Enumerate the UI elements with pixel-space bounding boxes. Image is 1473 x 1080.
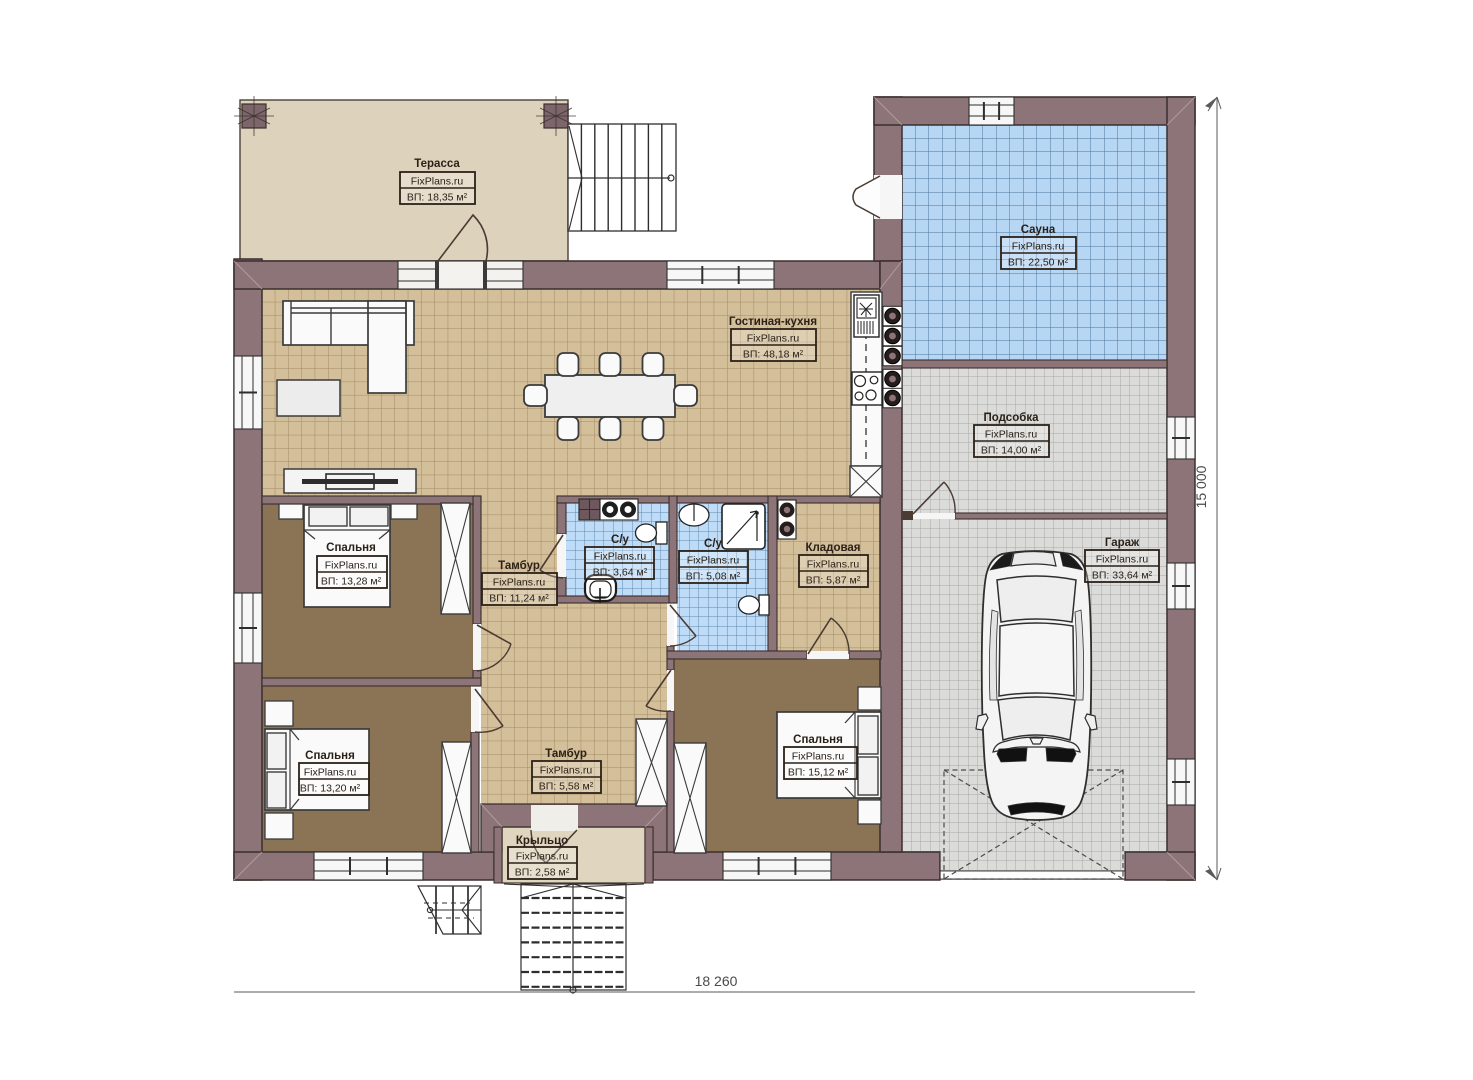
svg-text:Спальня: Спальня bbox=[305, 750, 355, 762]
svg-text:ВП: 15,12 м²: ВП: 15,12 м² bbox=[788, 767, 849, 779]
svg-text:Сауна: Сауна bbox=[1021, 224, 1056, 236]
svg-text:FixPlans.ru: FixPlans.ru bbox=[516, 851, 569, 863]
svg-text:FixPlans.ru: FixPlans.ru bbox=[687, 555, 740, 567]
svg-text:Тамбур: Тамбур bbox=[545, 748, 587, 760]
svg-text:FixPlans.ru: FixPlans.ru bbox=[304, 767, 357, 779]
svg-text:С/у: С/у bbox=[611, 534, 630, 546]
svg-text:15 000: 15 000 bbox=[1193, 465, 1209, 508]
svg-text:FixPlans.ru: FixPlans.ru bbox=[411, 176, 464, 188]
svg-text:ВП: 13,28 м²: ВП: 13,28 м² bbox=[321, 576, 382, 588]
svg-text:ВП: 11,24 м²: ВП: 11,24 м² bbox=[489, 593, 549, 605]
svg-text:ВП: 5,58 м²: ВП: 5,58 м² bbox=[539, 781, 594, 793]
svg-text:FixPlans.ru: FixPlans.ru bbox=[325, 560, 378, 572]
svg-text:Крыльцо: Крыльцо bbox=[516, 835, 568, 847]
svg-text:ВП: 5,08 м²: ВП: 5,08 м² bbox=[686, 571, 741, 583]
svg-text:Кладовая: Кладовая bbox=[805, 542, 860, 554]
svg-text:ВП: 2,58 м²: ВП: 2,58 м² bbox=[515, 867, 570, 879]
svg-text:FixPlans.ru: FixPlans.ru bbox=[807, 559, 860, 571]
svg-text:Спальня: Спальня bbox=[793, 734, 843, 746]
svg-text:FixPlans.ru: FixPlans.ru bbox=[747, 333, 800, 345]
svg-text:18 260: 18 260 bbox=[695, 973, 738, 989]
svg-text:ВП: 3,64 м²: ВП: 3,64 м² bbox=[593, 567, 648, 579]
svg-text:Терасса: Терасса bbox=[414, 158, 460, 170]
svg-text:ВП: 5,87 м²: ВП: 5,87 м² bbox=[806, 575, 861, 587]
svg-text:С/у: С/у bbox=[704, 538, 723, 550]
svg-text:Гараж: Гараж bbox=[1105, 537, 1140, 549]
svg-text:FixPlans.ru: FixPlans.ru bbox=[594, 551, 647, 563]
svg-text:ВП: 18,35 м²: ВП: 18,35 м² bbox=[407, 192, 468, 204]
svg-text:ВП: 48,18 м²: ВП: 48,18 м² bbox=[743, 349, 804, 361]
svg-text:FixPlans.ru: FixPlans.ru bbox=[792, 751, 845, 763]
svg-text:FixPlans.ru: FixPlans.ru bbox=[493, 577, 546, 589]
svg-text:ВП: 22,50 м²: ВП: 22,50 м² bbox=[1008, 257, 1069, 269]
svg-text:Спальня: Спальня bbox=[326, 542, 376, 554]
svg-text:ВП: 33,64 м²: ВП: 33,64 м² bbox=[1092, 570, 1153, 582]
svg-text:ВП: 13,20 м²: ВП: 13,20 м² bbox=[300, 783, 361, 795]
svg-text:Подсобка: Подсобка bbox=[984, 412, 1040, 424]
svg-text:Тамбур: Тамбур bbox=[498, 560, 540, 572]
svg-text:FixPlans.ru: FixPlans.ru bbox=[1012, 241, 1065, 253]
svg-text:FixPlans.ru: FixPlans.ru bbox=[1096, 554, 1149, 566]
svg-text:Гостиная-кухня: Гостиная-кухня bbox=[729, 316, 817, 328]
svg-text:ВП: 14,00 м²: ВП: 14,00 м² bbox=[981, 445, 1042, 457]
svg-text:FixPlans.ru: FixPlans.ru bbox=[985, 429, 1038, 441]
svg-text:FixPlans.ru: FixPlans.ru bbox=[540, 765, 593, 777]
